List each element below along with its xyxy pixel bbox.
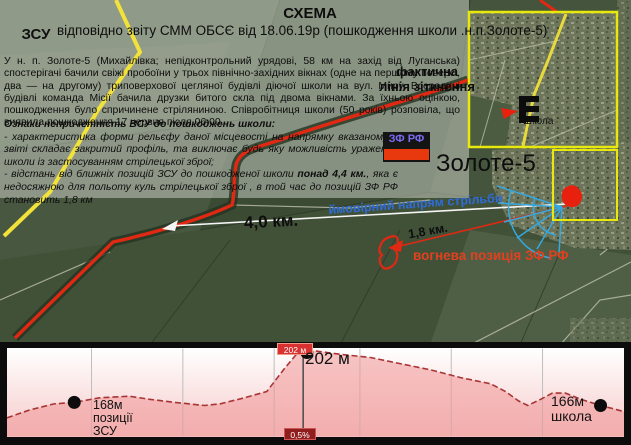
schema-title: СХЕМА: [240, 5, 380, 22]
start-elevation-label: 168м позиції ЗСУ: [93, 399, 153, 438]
conclusions-block: Ознаки непричетність ВСУ до пошкоджень ш…: [4, 119, 398, 207]
distance-total-label: 4,0 км.: [244, 211, 299, 234]
inset-school-label: Школа: [523, 116, 553, 127]
zsu-badge-label: ЗСУ: [22, 26, 51, 43]
zf-rf-badge-stripe: [384, 149, 429, 160]
zsu-flag-badge: ЗСУ: [10, 19, 62, 50]
conclusions-point1: - характеристика форми рельєфу даної міс…: [4, 132, 398, 168]
fire-position-label: вогнева позиція ЗФ РФ: [413, 248, 569, 263]
schema-screenshot: СХЕМА відповідно звіту СММ ОБСЄ від 18.0…: [0, 0, 631, 445]
town-label: Золоте-5: [436, 150, 536, 178]
zf-rf-flag-badge: ЗФ РФ: [383, 132, 430, 162]
peak-elevation-label: 202 м: [305, 349, 350, 369]
schema-subtitle: відповідно звіту СММ ОБСЄ від 18.06.19р …: [57, 23, 547, 38]
conclusions-point2: - відстань від ближніх позицій ЗСУ до по…: [4, 169, 398, 205]
contact-line-label: фактична лінія зіткнення: [379, 64, 475, 94]
zf-rf-badge-label: ЗФ РФ: [383, 133, 430, 145]
slope-badge: 0,5%: [284, 428, 316, 440]
elevation-profile-panel: 202 м 202 м 0,5% 168м позиції ЗСУ 166м ш…: [0, 342, 631, 445]
conclusions-heading: Ознаки непричетність ВСУ до пошкоджень ш…: [4, 119, 275, 130]
end-elevation-label: 166м школа: [551, 394, 621, 424]
